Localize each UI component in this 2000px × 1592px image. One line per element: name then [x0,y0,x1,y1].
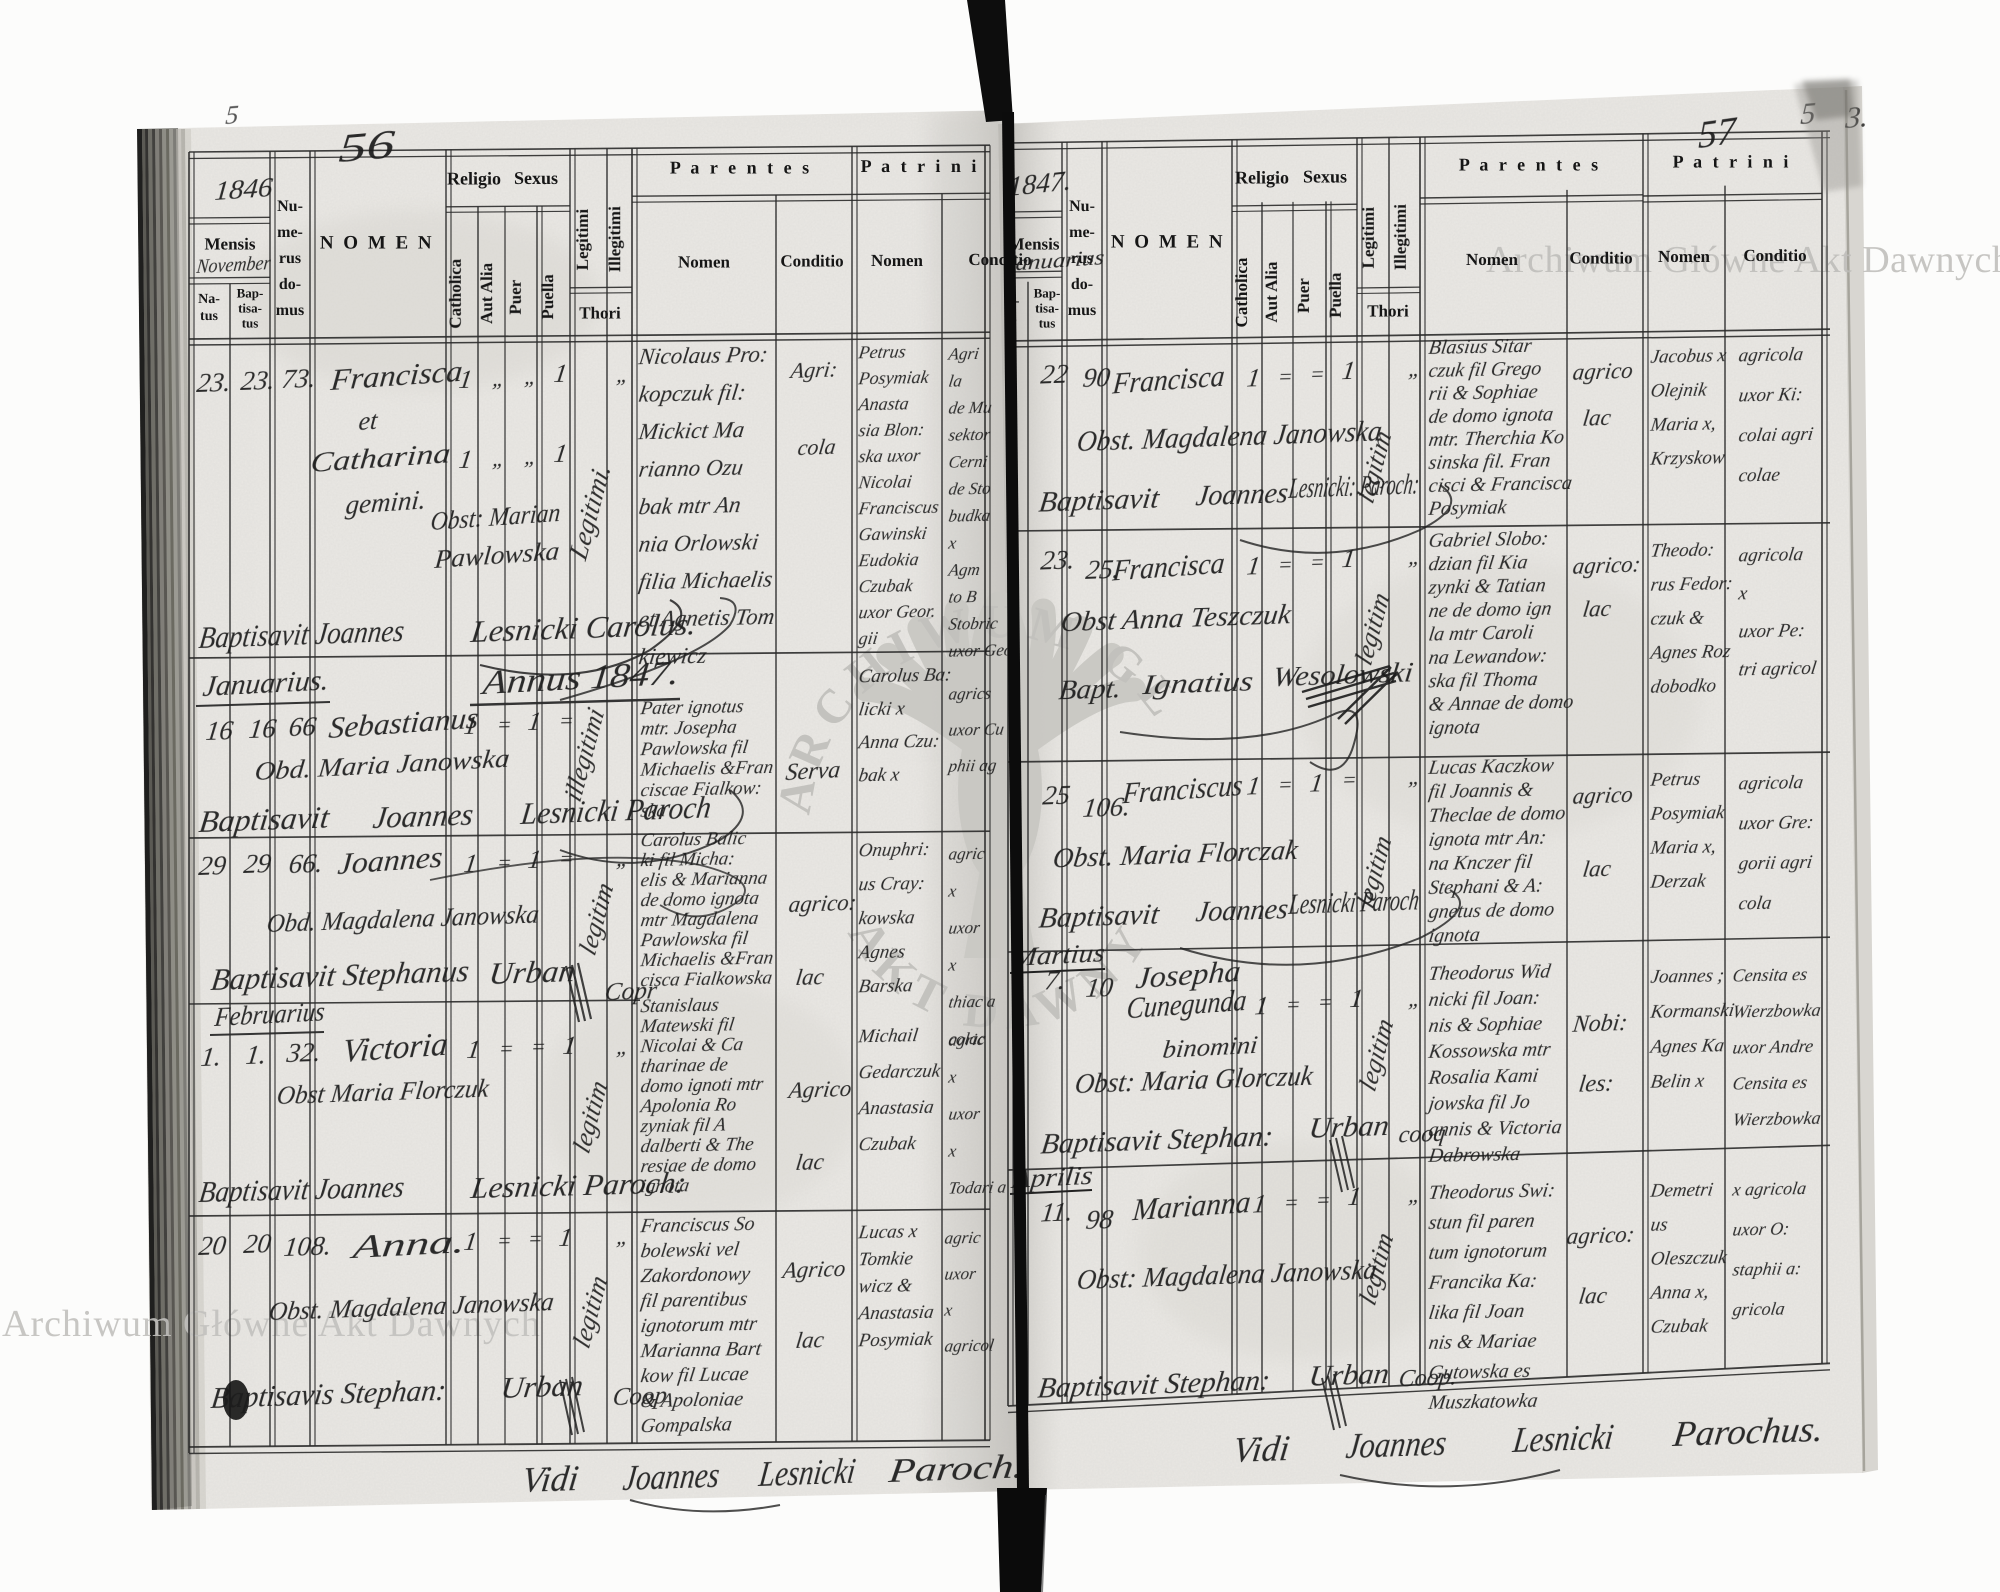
svg-text:budka: budka [947,506,991,526]
svg-text:x agricola: x agricola [1730,1178,1807,1200]
svg-text:Lesnicki Paroch:: Lesnicki Paroch: [468,1166,688,1205]
svg-text:gricola: gricola [1731,1298,1786,1319]
svg-text:Conditio: Conditio [1569,248,1632,267]
svg-text:na Lewandow:: na Lewandow: [1427,644,1548,669]
svg-text:25: 25 [1041,779,1072,810]
svg-text:dzian fil Kia: dzian fil Kia [1427,551,1529,575]
svg-text:cola: cola [796,434,837,460]
svg-text:gorii agri: gorii agri [1737,852,1813,875]
svg-text:nia Orlowski: nia Orlowski [637,529,760,557]
svg-text:Muszkatowka: Muszkatowka [1426,1390,1539,1414]
svg-text:Puella: Puella [1326,272,1345,318]
svg-text:Cerni: Cerni [947,452,989,472]
svg-text:Illegitimi: Illegitimi [605,206,624,272]
svg-text:Agnes Roz: Agnes Roz [1647,641,1732,664]
svg-text:Francika Ka:: Francika Ka: [1426,1270,1538,1294]
svg-text:mus: mus [276,302,304,319]
svg-text:90: 90 [1081,362,1112,393]
svg-text:Paroch.: Paroch. [886,1448,1027,1490]
svg-text:la mtr Caroli: la mtr Caroli [1427,621,1535,645]
svg-text:binomini: binomini [1161,1032,1259,1064]
svg-text:agricol: agricol [943,1336,995,1356]
svg-text:Urban: Urban [487,953,577,991]
svg-text:ne de domo ign: ne de domo ign [1427,597,1553,622]
svg-text:me-: me- [277,224,303,241]
svg-text:29: 29 [197,850,228,881]
svg-text:10: 10 [1084,972,1115,1003]
svg-text:Conditio: Conditio [780,252,843,271]
svg-text:agricola: agricola [1737,544,1804,566]
svg-text:Aut Alia: Aut Alia [1262,261,1281,322]
svg-text:de Mu: de Mu [947,398,993,418]
svg-text:Olejnik: Olejnik [1649,379,1708,401]
svg-text:Catholica: Catholica [1232,257,1251,327]
svg-text:Nu-: Nu- [1069,198,1095,215]
svg-text:uxor Ki:: uxor Ki: [1737,384,1804,406]
svg-text:us Cray:: us Cray: [857,873,926,895]
svg-text:Pawlowska fil: Pawlowska fil [638,737,749,760]
svg-text:Posymiak: Posymiak [1426,496,1509,520]
svg-text:uxor Gre:: uxor Gre: [1737,812,1815,835]
svg-text:Joannes: Joannes [1344,1422,1449,1466]
svg-text:Puer: Puer [506,279,525,314]
svg-text:rianno Ozu: rianno Ozu [637,454,745,481]
svg-text:Nicolaus Pro:: Nicolaus Pro: [636,341,769,369]
svg-text:Lesnicki: Paroch:: Lesnicki: Paroch: [1287,468,1421,505]
svg-text:Anastasia: Anastasia [855,1302,935,1325]
svg-text:Urban: Urban [499,1369,585,1405]
svg-text:Lesnicki: Lesnicki [1510,1416,1616,1460]
svg-text:Rosalia Kami: Rosalia Kami [1426,1065,1539,1089]
svg-text:23.: 23. [195,367,232,398]
svg-text:Zakordonowy: Zakordonowy [639,1263,751,1287]
svg-text:Sexus: Sexus [514,168,558,188]
svg-text:bak mtr An: bak mtr An [637,492,742,519]
svg-text:Pater ignotus: Pater ignotus [638,696,745,719]
svg-text:Derzak: Derzak [1648,870,1707,892]
svg-text:66: 66 [287,711,318,742]
svg-text:16: 16 [247,713,278,744]
svg-text:gnetus de domo: gnetus de domo [1427,898,1556,923]
svg-text:uxor: uxor [947,918,981,938]
svg-text:cooq: cooq [1397,1121,1447,1149]
svg-text:Bapt.: Bapt. [1057,673,1123,706]
svg-text:Joannes: Joannes [371,796,475,835]
svg-text:Religio: Religio [1235,167,1289,187]
svg-text:Theclae de domo: Theclae de domo [1427,802,1567,827]
svg-text:P a r e n t e s: P a r e n t e s [670,157,812,177]
svg-text:Baptisavit: Baptisavit [1037,482,1162,518]
svg-text:jowska fil Jo: jowska fil Jo [1424,1091,1531,1115]
svg-text:Urban: Urban [1307,1358,1391,1393]
svg-text:agrico:: agrico: [787,890,858,917]
svg-text:Puella: Puella [538,274,557,320]
svg-text:Joannes ;: Joannes ; [1649,965,1725,988]
svg-text:agrico:: agrico: [1565,1221,1636,1248]
svg-text:Lesnicki Paroch: Lesnicki Paroch [1286,884,1421,921]
svg-text:Agrico: Agrico [779,1256,847,1283]
svg-text:na Knczer fil: na Knczer fil [1427,851,1534,875]
svg-text:nis & Mariae: nis & Mariae [1427,1330,1538,1354]
svg-text:Agri:: Agri: [787,356,839,383]
svg-text:uxor: uxor [943,1264,977,1284]
svg-text:Stephani & A:: Stephani & A: [1427,874,1544,898]
svg-text:rii & Sophiae: rii & Sophiae [1427,381,1539,405]
svg-text:uxor Cu: uxor Cu [947,719,1005,739]
svg-text:Nomen: Nomen [871,251,923,270]
svg-text:lac: lac [794,1149,825,1175]
svg-text:Lucas x: Lucas x [856,1221,919,1243]
svg-text:us: us [1649,1214,1669,1235]
svg-text:colae: colae [1737,464,1781,486]
svg-text:uxor Geo: uxor Geo [947,640,1013,660]
svg-text:Vidi: Vidi [1231,1428,1292,1470]
svg-text:lac: lac [1581,405,1612,431]
svg-text:cola: cola [1737,893,1773,915]
svg-text:Censita es: Censita es [1731,1072,1808,1094]
svg-text:Joannes: Joannes [1194,893,1290,928]
svg-text:Parochus.: Parochus. [1670,1409,1826,1454]
svg-text:56: 56 [337,121,396,171]
svg-text:tisa-: tisa- [1035,300,1059,315]
svg-text:agric: agric [947,1030,986,1050]
svg-text:P a r e n t e s: P a r e n t e s [1459,154,1601,174]
svg-text:20: 20 [242,1228,273,1259]
svg-text:czuk fil Grego: czuk fil Grego [1427,357,1543,381]
svg-text:Theodorus Swi:: Theodorus Swi: [1427,1179,1556,1204]
svg-text:Agm: Agm [946,560,981,580]
svg-text:Tomkie: Tomkie [857,1248,914,1270]
svg-text:ska uxor: ska uxor [857,445,922,466]
svg-text:Baptisavit Joannes: Baptisavit Joannes [197,613,406,655]
svg-text:Ignatius: Ignatius [1140,666,1255,701]
svg-text:Anna x,: Anna x, [1647,1281,1710,1303]
svg-text:16: 16 [204,715,235,746]
svg-text:domo ignoti mtr: domo ignoti mtr [639,1074,765,1098]
svg-text:Stobric: Stobric [947,614,999,634]
svg-text:lac: lac [1577,1283,1608,1309]
svg-text:Februarius: Februarius [212,996,326,1032]
svg-text:20: 20 [197,1230,228,1261]
svg-text:kopczuk fil:: kopczuk fil: [637,379,747,406]
svg-text:Maria x,: Maria x, [1648,836,1717,858]
svg-text:Todari a: Todari a [947,1177,1007,1197]
svg-text:sinska fil. Fran: sinska fil. Fran [1427,449,1552,474]
svg-text:Anastasia: Anastasia [855,1097,935,1120]
svg-text:bak x: bak x [857,764,901,786]
svg-text:uxor O:: uxor O: [1731,1218,1790,1239]
svg-text:Gabriel Slobo:: Gabriel Slobo: [1427,527,1549,552]
svg-text:tus: tus [242,316,259,331]
svg-text:Wierzbowka: Wierzbowka [1731,1108,1822,1130]
svg-text:to B: to B [947,587,978,607]
svg-text:agrico: agrico [1571,782,1634,809]
svg-text:ignota: ignota [1427,716,1481,739]
svg-text:Nomen: Nomen [1466,250,1518,269]
svg-text:Agnes: Agnes [855,941,906,963]
svg-text:Gedarczuk: Gedarczuk [857,1061,942,1084]
svg-text:ignotorum mtr: ignotorum mtr [639,1313,758,1338]
svg-text:32.: 32. [284,1037,322,1068]
svg-text:do-: do- [279,276,301,293]
svg-text:Serva: Serva [784,757,841,786]
svg-text:Puer: Puer [1294,278,1313,313]
svg-text:108.: 108. [282,1230,333,1262]
svg-text:Nomen: Nomen [678,253,730,272]
svg-text:fil parentibus: fil parentibus [639,1288,749,1312]
svg-text:agrics: agrics [947,684,992,704]
svg-text:Nomen: Nomen [1658,247,1710,266]
svg-text:gii: gii [857,628,879,648]
svg-text:Catholica: Catholica [446,258,465,328]
svg-text:P a t r i n i: P a t r i n i [861,156,980,176]
svg-text:Baptisavit: Baptisavit [197,799,333,839]
svg-text:ignota: ignota [1427,924,1481,947]
svg-text:Bap-: Bap- [1034,285,1061,300]
svg-text:Mensis: Mensis [205,235,256,254]
svg-text:Thori: Thori [579,304,621,323]
svg-text:Kormanski: Kormanski [1648,1000,1735,1023]
svg-text:Marianna Bart: Marianna Bart [638,1338,763,1363]
svg-text:Agrico: Agrico [785,1076,853,1103]
svg-text:Bap-: Bap- [237,286,264,301]
svg-text:Posymiak: Posymiak [856,1329,934,1352]
svg-text:Oleszczuk: Oleszczuk [1649,1247,1728,1270]
svg-text:Mickict Ma: Mickict Ma [636,417,746,444]
svg-text:zynki & Tatian: zynki & Tatian [1426,574,1547,599]
svg-text:Illegitimi: Illegitimi [1391,204,1410,270]
svg-text:Censita es: Censita es [1731,964,1808,986]
svg-text:Religio: Religio [447,169,501,189]
svg-text:wicz &: wicz & [857,1275,913,1297]
svg-text:Lucas Kaczkow: Lucas Kaczkow [1426,754,1556,779]
svg-text:Nobi:: Nobi: [1570,1010,1629,1038]
svg-text:thiac a: thiac a [947,992,996,1012]
svg-text:Na-: Na- [198,292,220,307]
svg-text:me-: me- [1069,224,1095,241]
svg-text:filia Michaelis: filia Michaelis [637,566,774,594]
svg-text:Petrus: Petrus [1648,769,1701,791]
svg-text:7.: 7. [1043,965,1067,996]
svg-text:11.: 11. [1039,1196,1074,1227]
svg-text:22: 22 [1039,358,1070,389]
svg-text:Eudokia: Eudokia [856,549,920,570]
svg-text:& Annae de domo: & Annae de domo [1427,691,1575,716]
svg-text:Theodo:: Theodo: [1649,539,1715,561]
svg-text:stun fil paren: stun fil paren [1427,1210,1536,1234]
svg-text:Blasius Sitar: Blasius Sitar [1427,335,1533,359]
svg-text:sia Blon:: sia Blon: [857,419,925,440]
svg-text:les:: les: [1577,1070,1615,1097]
svg-text:Nu-: Nu- [277,198,303,215]
svg-text:1.: 1. [199,1041,223,1072]
svg-text:N O M E N: N O M E N [1111,232,1225,253]
svg-text:Posymiak: Posymiak [1648,802,1726,825]
svg-text:tisa-: tisa- [238,301,262,316]
svg-text:Agri: Agri [946,344,980,364]
svg-text:uxor: uxor [947,1104,981,1124]
svg-text:N O M E N: N O M E N [320,232,434,253]
svg-text:lac: lac [794,1327,825,1353]
svg-text:bolewski vel: bolewski vel [639,1238,741,1262]
svg-text:ska fil Thoma: ska fil Thoma [1427,668,1539,692]
svg-text:lac: lac [1581,856,1612,882]
svg-text:57: 57 [1698,109,1738,157]
svg-text:de domo ignota: de domo ignota [1427,403,1554,428]
svg-text:lac: lac [794,964,825,990]
svg-text:de Sto: de Sto [947,479,992,499]
svg-text:Anna.: Anna. [348,1224,467,1266]
svg-text:Czubak: Czubak [1649,1315,1709,1337]
svg-text:agricola: agricola [1737,344,1804,366]
svg-text:Legitimi: Legitimi [1359,207,1378,269]
svg-text:phii ag: phii ag [946,756,997,776]
svg-text:23.: 23. [1039,544,1076,575]
svg-text:Baptisavit Joannes: Baptisavit Joannes [197,1171,406,1209]
svg-text:23.: 23. [239,365,276,396]
svg-text:November: November [195,252,272,278]
svg-text:Joannes: Joannes [621,1454,722,1498]
svg-text:uxor Pe:: uxor Pe: [1737,620,1806,642]
svg-text:Maria x,: Maria x, [1648,413,1717,435]
svg-text:annis & Victoria: annis & Victoria [1427,1116,1563,1141]
svg-text:Gawinski: Gawinski [857,523,928,544]
svg-text:Onuphri:: Onuphri: [857,839,931,862]
svg-text:Legitimi: Legitimi [573,209,592,271]
svg-text:gemini.: gemini. [344,484,427,520]
svg-text:Lesnicki: Lesnicki [756,1450,858,1494]
svg-text:nicki fil Joan:: nicki fil Joan: [1427,987,1541,1011]
svg-text:Carolus Ba:: Carolus Ba: [857,664,953,687]
svg-text:Lesnicki Paroch: Lesnicki Paroch [518,789,713,831]
svg-text:nis & Sophiae: nis & Sophiae [1427,1012,1543,1036]
svg-text:uxor Andre: uxor Andre [1731,1036,1814,1058]
svg-text:98: 98 [1084,1204,1115,1235]
svg-text:Posymiak: Posymiak [856,367,931,389]
svg-text:rus: rus [279,250,301,267]
svg-text:rus Fedor:: rus Fedor: [1649,573,1734,596]
svg-text:Petrus: Petrus [856,341,907,362]
svg-text:uxor Geor.: uxor Geor. [857,601,937,623]
svg-text:Michail: Michail [856,1025,919,1047]
svg-text:1.: 1. [244,1039,268,1070]
svg-text:Jacobus x: Jacobus x [1649,345,1728,368]
svg-text:29: 29 [242,848,273,879]
svg-text:fil Joannis &: fil Joannis & [1427,779,1535,803]
svg-text:Urban: Urban [1307,1110,1391,1145]
svg-text:P a t r i n i: P a t r i n i [1673,152,1792,172]
svg-text:cisca Fialkowska: cisca Fialkowska [639,967,773,991]
svg-text:kowska: kowska [857,907,916,929]
svg-text:66.: 66. [287,848,324,879]
svg-text:Aut Alia: Aut Alia [477,262,496,323]
svg-text:Czubak: Czubak [857,575,915,596]
svg-text:et: et [357,405,379,436]
svg-text:Vidi: Vidi [520,1458,581,1500]
svg-text:Gompalska: Gompalska [639,1413,733,1437]
svg-text:Coop: Coop [611,1382,668,1411]
svg-text:Demetri: Demetri [1648,1179,1714,1201]
svg-text:Januarius.: Januarius. [201,664,330,703]
svg-text:licki x: licki x [857,698,906,720]
svg-text:sektor: sektor [947,425,992,445]
svg-text:mtr. Therchia Ko: mtr. Therchia Ko [1427,426,1565,451]
svg-text:Krzyskow: Krzyskow [1648,447,1726,470]
svg-text:lika fil Joan: lika fil Joan [1427,1300,1526,1324]
svg-text:mtr. Josepha: mtr. Josepha [639,717,738,740]
svg-text:tus: tus [1039,315,1056,330]
svg-text:Barska: Barska [857,975,914,997]
svg-text:agric: agric [947,844,986,864]
svg-text:lac: lac [1581,596,1612,622]
svg-text:tus: tus [200,309,218,324]
svg-text:agric: agric [943,1228,982,1248]
svg-text:do-: do- [1071,276,1093,293]
svg-text:Agnes Ka: Agnes Ka [1647,1035,1725,1058]
svg-text:staphii a:: staphii a: [1731,1258,1802,1279]
svg-text:tri agricol: tri agricol [1737,658,1817,681]
svg-text:mus: mus [1068,302,1096,319]
svg-text:Coop.: Coop. [1397,1364,1458,1392]
svg-text:Baptisavit: Baptisavit [1037,898,1162,934]
svg-text:Franciscus: Franciscus [856,497,940,519]
svg-text:73.: 73. [280,363,317,394]
svg-text:Sexus: Sexus [1303,166,1347,186]
svg-text:5: 5 [225,100,240,130]
svg-text:Thori: Thori [1367,302,1409,321]
svg-text:Kossowska mtr: Kossowska mtr [1426,1038,1552,1063]
svg-text:Anna Czu:: Anna Czu: [855,731,941,754]
svg-text:Anasta: Anasta [856,393,910,414]
svg-text:agricola: agricola [1737,772,1804,794]
svg-text:Conditio: Conditio [1743,246,1806,265]
svg-text:la: la [947,371,963,390]
svg-text:dobodko: dobodko [1649,675,1717,697]
svg-text:Franciscus So: Franciscus So [638,1213,756,1237]
svg-text:Czubak: Czubak [857,1133,917,1155]
svg-text:agrico: agrico [1571,358,1634,385]
svg-text:czuk &: czuk & [1649,608,1705,630]
svg-text:Joannes: Joannes [1194,477,1290,512]
svg-text:tum ignotorum: tum ignotorum [1427,1239,1548,1264]
svg-text:Belin x: Belin x [1649,1071,1706,1093]
svg-text:colai agri: colai agri [1737,424,1814,447]
svg-text:agrico:: agrico: [1571,551,1642,578]
svg-text:1846: 1846 [213,172,274,206]
svg-text:Theodorus Wid: Theodorus Wid [1427,960,1553,985]
svg-text:ignota mtr An:: ignota mtr An: [1427,826,1547,851]
svg-text:Nicolai: Nicolai [856,471,913,492]
svg-text:Victoria: Victoria [341,1026,449,1070]
svg-text:Wierzbowka: Wierzbowka [1731,1000,1822,1022]
